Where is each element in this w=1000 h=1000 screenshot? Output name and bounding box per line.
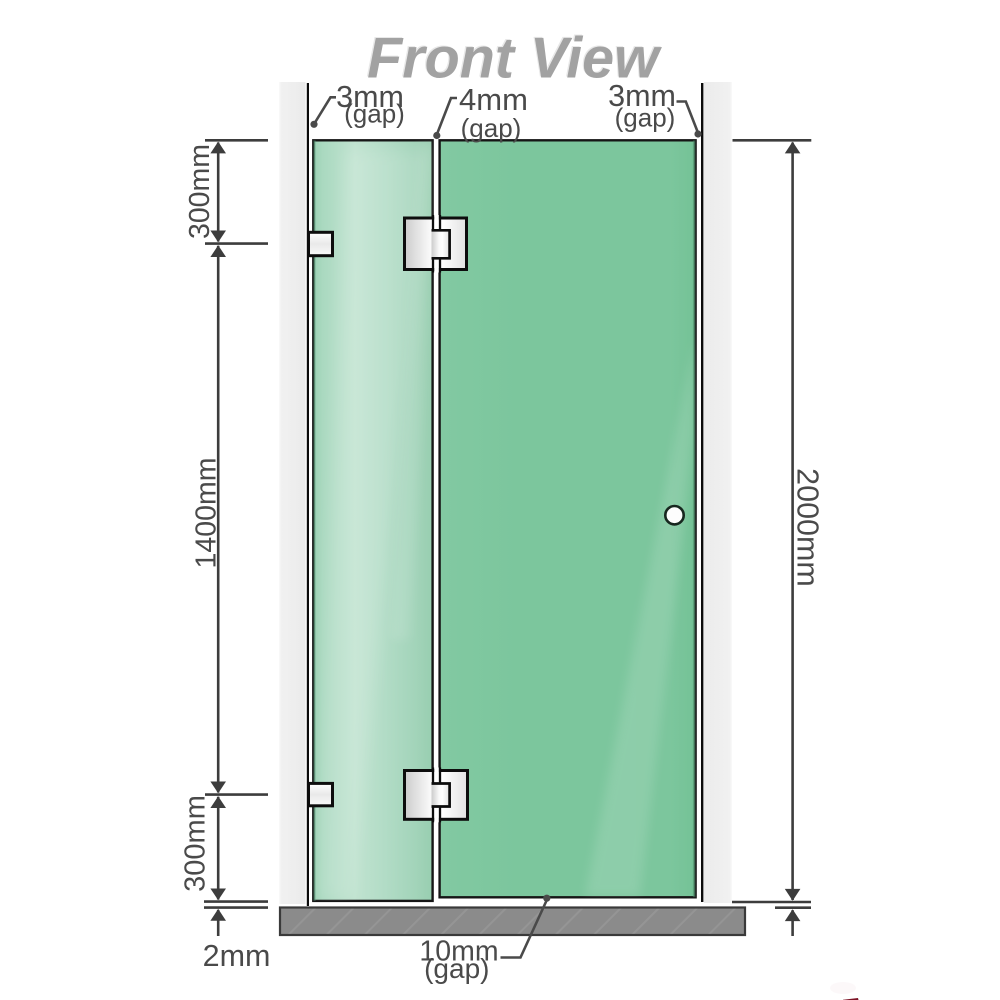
- svg-text:4mm: 4mm: [459, 82, 528, 117]
- svg-text:(gap): (gap): [344, 99, 405, 129]
- svg-text:(gap): (gap): [424, 953, 489, 984]
- svg-text:(gap): (gap): [461, 113, 522, 143]
- svg-text:2000mm: 2000mm: [791, 468, 825, 587]
- svg-text:300mm: 300mm: [180, 795, 212, 892]
- svg-text:300mm: 300mm: [184, 144, 216, 239]
- svg-text:(gap): (gap): [615, 103, 676, 133]
- svg-text:1400mm: 1400mm: [191, 458, 223, 569]
- svg-text:2mm: 2mm: [203, 939, 271, 973]
